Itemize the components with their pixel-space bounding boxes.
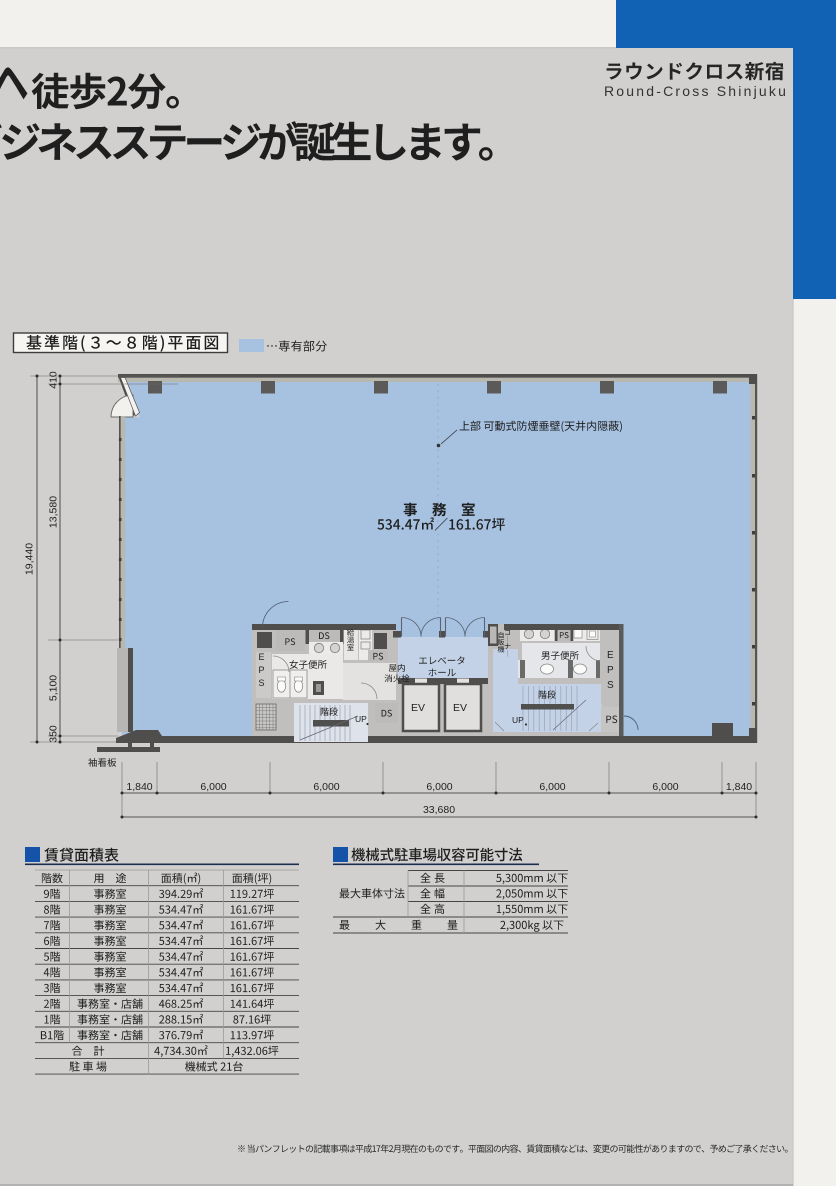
svg-text:6,000: 6,000: [426, 781, 452, 793]
svg-text:EV: EV: [411, 702, 425, 714]
svg-text:EV: EV: [453, 702, 467, 714]
svg-text:350: 350: [48, 725, 60, 743]
svg-text:E: E: [607, 650, 614, 661]
svg-text:19,440: 19,440: [24, 543, 36, 575]
svg-text:1,840: 1,840: [126, 781, 152, 793]
svg-text:6,000: 6,000: [539, 781, 565, 793]
svg-text:6,000: 6,000: [313, 781, 339, 793]
svg-text:410: 410: [48, 371, 60, 389]
svg-text:S: S: [607, 680, 614, 691]
svg-text:33,680: 33,680: [423, 804, 455, 816]
svg-text:S: S: [259, 678, 265, 688]
svg-text:E: E: [259, 652, 265, 662]
svg-text:5,100: 5,100: [48, 675, 60, 701]
svg-text:6,000: 6,000: [200, 781, 226, 793]
svg-text:P: P: [607, 665, 614, 676]
svg-text:1,840: 1,840: [726, 781, 752, 793]
svg-text:6,000: 6,000: [652, 781, 678, 793]
svg-text:UP: UP: [355, 714, 367, 724]
svg-text:Round-Cross Shinjuku: Round-Cross Shinjuku: [604, 83, 788, 99]
svg-text:P: P: [259, 665, 265, 675]
svg-text:UP: UP: [512, 715, 524, 725]
svg-text:13,580: 13,580: [48, 496, 60, 528]
